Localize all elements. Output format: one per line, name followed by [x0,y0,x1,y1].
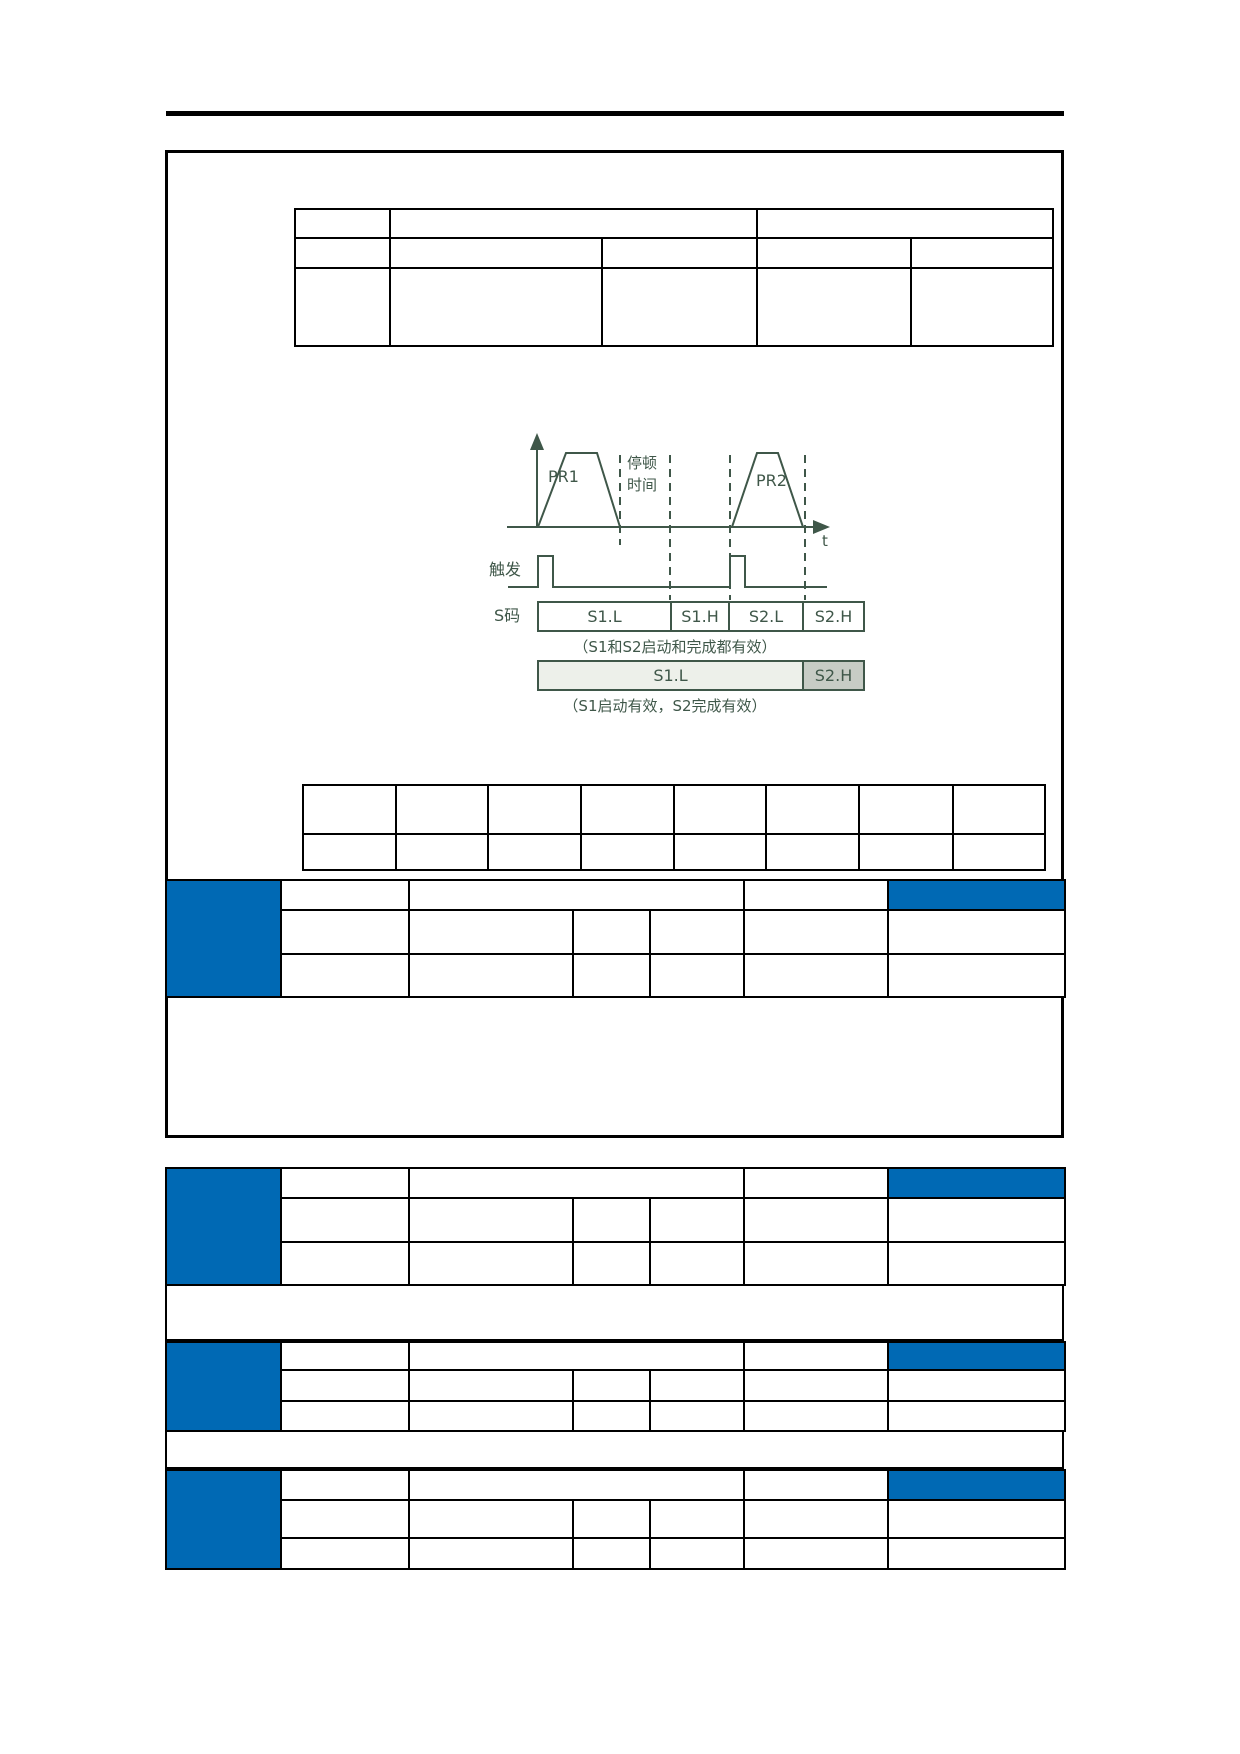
cell [757,238,911,268]
pr1-label: PR1 [548,467,579,487]
cell [295,209,390,238]
cell [744,1168,888,1198]
spec-table [294,208,1054,347]
cell [295,238,390,268]
s-code-cell-s1l: S1.L [537,601,672,632]
pause-time-line2: 时间 [627,474,657,496]
cell [744,1500,888,1538]
cell [409,1342,744,1370]
cell [409,1500,573,1538]
cell [744,1370,888,1401]
cell [650,1370,744,1401]
trigger-label: 触发 [489,560,521,580]
cell [396,785,488,834]
cell [650,1401,744,1431]
pause-time-label: 停顿 时间 [627,452,657,496]
cell [757,209,1053,238]
cell [744,910,888,954]
cell [744,1342,888,1370]
bar1-caption: （S1和S2启动和完成都有效） [490,637,860,657]
cell [396,834,488,870]
cell [888,1198,1065,1242]
cell [409,954,573,997]
s-code2-cell-s1l: S1.L [537,660,804,691]
t-axis-label: t [822,531,828,551]
cell [650,1538,744,1569]
cell [888,1401,1065,1431]
header-cell-blue [888,1470,1065,1500]
sequence-table [302,784,1046,871]
cell [281,1401,409,1431]
cell [295,268,390,346]
cell [409,880,744,910]
cell [573,954,650,997]
cell [281,1168,409,1198]
s-code-cell-s2l: S2.L [728,601,804,632]
header-rule [166,111,1064,116]
pr2-label: PR2 [756,471,787,491]
cell [281,910,409,954]
cell [602,238,757,268]
cell [409,1168,744,1198]
cell [390,268,602,346]
cell [409,1198,573,1242]
cell [303,785,396,834]
cell [573,1538,650,1569]
cell [281,1538,409,1569]
cell [281,954,409,997]
s-code-label: S码 [494,606,520,626]
cell [602,268,757,346]
s-code-bar-2: S1.L S2.H [537,660,865,691]
s-code-cell-s2h: S2.H [802,601,865,632]
s-code-bar-1: S1.L S1.H S2.L S2.H [537,601,865,632]
page: PR1 PR2 停顿 时间 t 触发 S码 S1.L S1.H S2.L S2.… [0,0,1240,1754]
cell [409,1242,573,1285]
cell [650,1242,744,1285]
cell [281,1342,409,1370]
cell [650,954,744,997]
cell [650,1198,744,1242]
cell [953,834,1045,870]
pause-time-line1: 停顿 [627,452,657,474]
cell [674,834,766,870]
param-table-1 [165,1167,1066,1286]
cell [390,209,757,238]
header-cell-blue [166,1168,281,1285]
cell [766,785,859,834]
cell [409,1370,573,1401]
cell [888,1370,1065,1401]
cell [744,1198,888,1242]
cell [281,1198,409,1242]
cell [744,954,888,997]
bar2-caption: （S1启动有效，S2完成有效） [490,696,840,716]
cell [766,834,859,870]
cell [757,268,911,346]
cell [744,1242,888,1285]
header-cell-blue [166,1342,281,1431]
cell [744,1470,888,1500]
cell [953,785,1045,834]
cell [281,1242,409,1285]
cell [573,1500,650,1538]
cell [281,1470,409,1500]
param-table-0 [165,879,1066,998]
cell [281,880,409,910]
param-table-2 [165,1341,1066,1432]
cell [573,1198,650,1242]
cell [488,834,581,870]
cell [409,1538,573,1569]
cell [911,268,1053,346]
cell [303,834,396,870]
cell [888,1538,1065,1569]
cell [573,1242,650,1285]
cell [674,785,766,834]
header-cell-blue [166,880,281,997]
cell [488,785,581,834]
cell [744,1538,888,1569]
header-cell-blue [166,1470,281,1569]
cell [409,910,573,954]
cell [859,834,953,870]
cell [409,1470,744,1500]
cell [650,1500,744,1538]
cell [573,1401,650,1431]
cell [744,880,888,910]
cell [573,1370,650,1401]
header-cell-blue [888,1168,1065,1198]
cell [390,238,602,268]
cell [573,910,650,954]
s-code-cell-s1h: S1.H [670,601,730,632]
cell [281,1370,409,1401]
cell [581,785,674,834]
cell [744,1401,888,1431]
cell [888,1500,1065,1538]
cell [888,1242,1065,1285]
cell [859,785,953,834]
note-row-1 [165,1284,1064,1341]
note-row-2 [165,1430,1064,1469]
cell [911,238,1053,268]
header-cell-blue [888,1342,1065,1370]
param-table-3 [165,1469,1066,1570]
cell [409,1401,573,1431]
cell [281,1500,409,1538]
cell [650,910,744,954]
cell [581,834,674,870]
s-code2-cell-s2h: S2.H [802,660,865,691]
cell [888,910,1065,954]
header-cell-blue [888,880,1065,910]
cell [888,954,1065,997]
